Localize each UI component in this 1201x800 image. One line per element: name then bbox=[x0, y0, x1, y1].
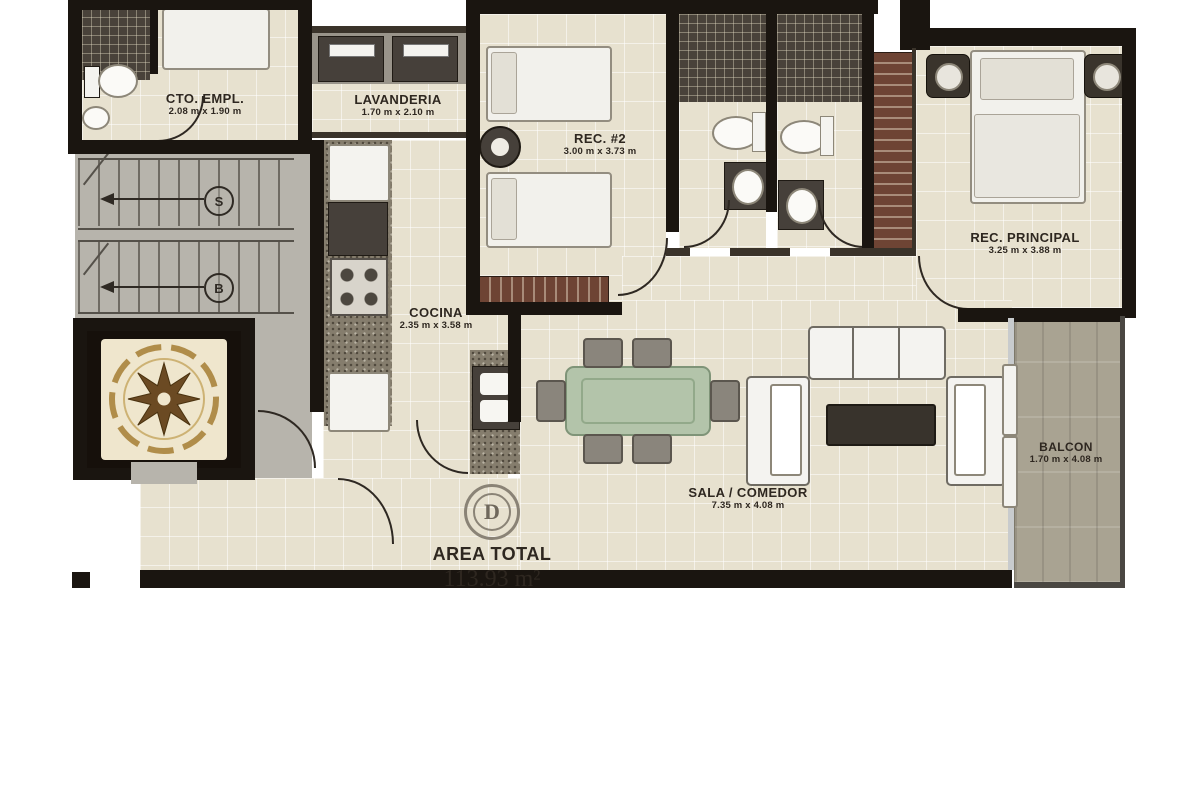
oven bbox=[328, 202, 388, 256]
single-bed bbox=[162, 8, 270, 70]
elevator-wall bbox=[241, 318, 255, 480]
wall bbox=[766, 14, 777, 212]
wall bbox=[508, 302, 521, 422]
wall bbox=[72, 572, 90, 588]
stair-down-symbol: B bbox=[204, 273, 234, 303]
toilet-tank bbox=[820, 116, 834, 156]
room-name: CTO. EMPL. bbox=[130, 92, 280, 107]
unit-badge: D bbox=[464, 484, 520, 540]
stair-up-symbol: S bbox=[204, 186, 234, 216]
toilet-tank bbox=[752, 112, 766, 152]
sofa bbox=[808, 326, 946, 380]
stair-down-arrow bbox=[104, 286, 204, 288]
pillow bbox=[491, 52, 517, 114]
wall bbox=[312, 26, 470, 33]
single-bed bbox=[486, 172, 612, 248]
room-name: REC. PRINCIPAL bbox=[935, 231, 1115, 246]
room-dims: 3.25 m x 3.88 m bbox=[935, 246, 1115, 257]
wall bbox=[830, 248, 916, 256]
room-dims: 2.08 m x 1.90 m bbox=[130, 107, 280, 118]
stair-flight-down bbox=[78, 242, 294, 314]
vanity bbox=[724, 162, 770, 210]
stair-flight-up bbox=[78, 158, 294, 226]
coffee-table bbox=[826, 404, 936, 446]
wall bbox=[150, 8, 158, 74]
dining-chair bbox=[710, 380, 740, 422]
dining-chair bbox=[583, 434, 623, 464]
dining-chair bbox=[583, 338, 623, 368]
elevator-wall bbox=[73, 318, 87, 480]
room-dims: 3.00 m x 3.73 m bbox=[520, 147, 680, 158]
armchair bbox=[946, 376, 1006, 486]
shower bbox=[777, 14, 862, 102]
balcony-railing bbox=[1014, 582, 1125, 588]
wall bbox=[1122, 28, 1136, 318]
wall bbox=[68, 0, 82, 154]
wall bbox=[862, 14, 874, 252]
wall bbox=[666, 248, 690, 256]
compass-rose-icon bbox=[87, 331, 241, 468]
room-name: COCINA bbox=[366, 306, 506, 321]
room-label-lavanderia: LAVANDERIA 1.70 m x 2.10 m bbox=[318, 93, 478, 119]
wall bbox=[912, 48, 916, 252]
lamp bbox=[935, 63, 963, 91]
stair-down-letter: B bbox=[214, 281, 223, 296]
floor-plan: S B CTO. EMPL. 2.08 m x 1.90 m LAVANDERI… bbox=[0, 0, 1201, 800]
elevator-wall bbox=[73, 468, 131, 480]
fridge bbox=[328, 144, 390, 202]
dishwasher bbox=[328, 372, 390, 432]
pillow bbox=[491, 178, 517, 240]
dining-chair bbox=[632, 338, 672, 368]
shower bbox=[679, 14, 766, 102]
wall bbox=[68, 140, 320, 154]
wall bbox=[298, 0, 312, 154]
pillow bbox=[980, 58, 1074, 100]
dining-chair bbox=[632, 434, 672, 464]
room-dims: 7.35 m x 4.08 m bbox=[648, 501, 848, 512]
double-bed bbox=[970, 50, 1086, 204]
wall bbox=[730, 248, 790, 256]
elevator-wall bbox=[73, 318, 255, 331]
dryer bbox=[392, 36, 458, 82]
room-name: SALA / COMEDOR bbox=[648, 486, 848, 501]
dryer-lid bbox=[403, 44, 449, 57]
sink bbox=[732, 169, 764, 205]
sink bbox=[82, 106, 110, 130]
room-label-rec-principal: REC. PRINCIPAL 3.25 m x 3.88 m bbox=[935, 231, 1115, 257]
room-name: REC. #2 bbox=[520, 132, 680, 147]
wall bbox=[466, 0, 480, 302]
bedroom2-closet bbox=[479, 276, 609, 304]
area-total-block: D AREA TOTAL 113.93 m² bbox=[392, 484, 592, 593]
sink-basin bbox=[480, 400, 510, 422]
stair-landing bbox=[78, 228, 294, 242]
wall bbox=[908, 28, 1136, 46]
lamp bbox=[1093, 63, 1121, 91]
room-label-sala-comedor: SALA / COMEDOR 7.35 m x 4.08 m bbox=[648, 486, 848, 512]
sink bbox=[786, 188, 818, 224]
dining-table bbox=[565, 366, 711, 436]
dining-table-inlay bbox=[581, 378, 695, 424]
room-name: LAVANDERIA bbox=[318, 93, 478, 108]
stair-up-arrow bbox=[104, 198, 204, 200]
room-name: BALCON bbox=[1010, 441, 1122, 455]
nightstand bbox=[479, 126, 521, 168]
unit-letter: D bbox=[473, 493, 511, 531]
stair-up-letter: S bbox=[215, 194, 224, 209]
sliding-door-panel bbox=[1002, 364, 1018, 436]
sink-basin bbox=[480, 373, 510, 395]
vanity bbox=[778, 180, 824, 230]
elevator-cab bbox=[87, 331, 241, 468]
single-bed bbox=[486, 46, 612, 122]
room-label-balcon: BALCON 1.70 m x 4.08 m bbox=[1010, 441, 1122, 466]
armchair bbox=[746, 376, 810, 486]
area-total-label: AREA TOTAL bbox=[392, 544, 592, 565]
washer bbox=[318, 36, 384, 82]
washer-lid bbox=[329, 44, 375, 57]
lamp bbox=[491, 138, 509, 156]
wall bbox=[310, 140, 324, 412]
room-label-rec-2: REC. #2 3.00 m x 3.73 m bbox=[520, 132, 680, 158]
room-label-cocina: COCINA 2.35 m x 3.58 m bbox=[366, 306, 506, 332]
wall bbox=[958, 308, 1125, 322]
wall bbox=[312, 132, 470, 138]
room-label-cto-empl: CTO. EMPL. 2.08 m x 1.90 m bbox=[130, 92, 280, 118]
wall bbox=[68, 0, 312, 10]
armchair-cushion bbox=[954, 384, 986, 476]
area-total-value: 113.93 m² bbox=[392, 566, 592, 593]
dining-chair bbox=[536, 380, 566, 422]
elevator-wall bbox=[197, 468, 255, 480]
wall bbox=[666, 0, 679, 232]
nightstand bbox=[926, 54, 970, 98]
room-dims: 2.35 m x 3.58 m bbox=[366, 321, 506, 332]
bed-cover bbox=[974, 114, 1080, 198]
armchair-cushion bbox=[770, 384, 802, 476]
room-dims: 1.70 m x 2.10 m bbox=[318, 108, 478, 119]
elevator-door bbox=[131, 462, 197, 484]
room-dims: 1.70 m x 4.08 m bbox=[1010, 455, 1122, 466]
